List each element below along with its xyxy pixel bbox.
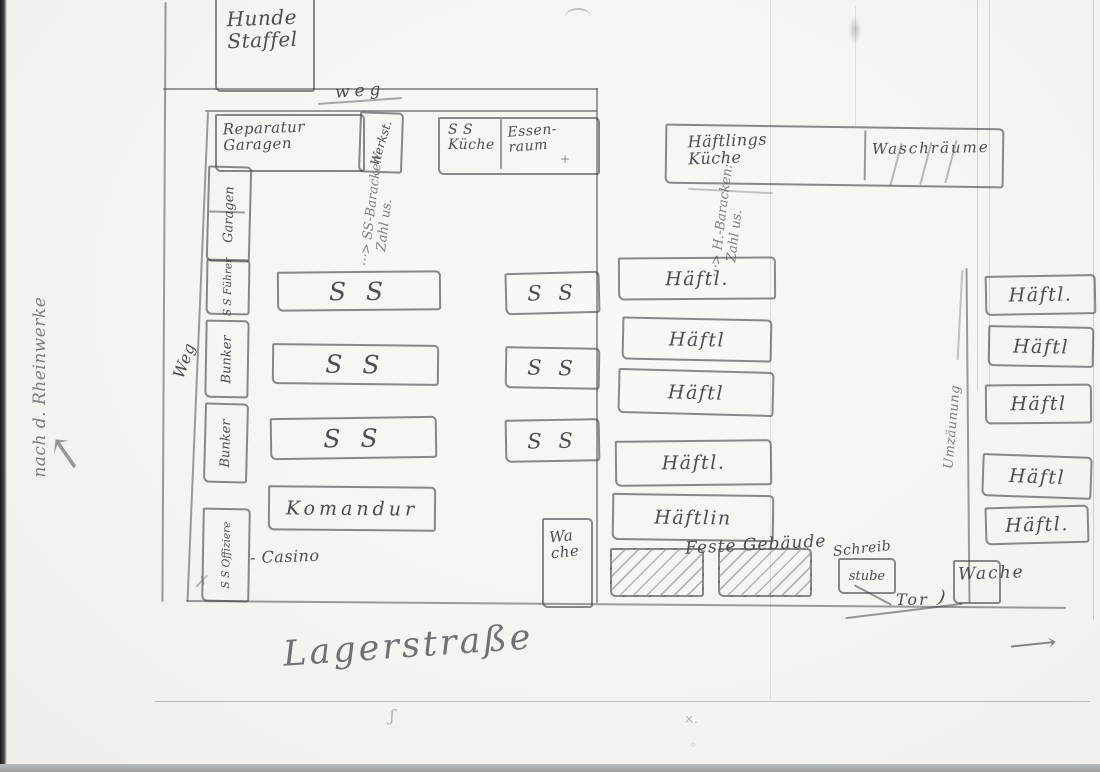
faint-bottom-line [155, 701, 1090, 702]
rheinwerke-arrow: ↖ [45, 425, 86, 481]
haeftl-label: Häftl. [1005, 513, 1069, 537]
ss-small-block-1: S S [504, 271, 600, 315]
casino-label: - Casino [250, 547, 320, 567]
fence-line-right [966, 268, 971, 603]
ss-block-label: S S [325, 350, 386, 380]
essenraum-label: Essen- raum [507, 122, 559, 156]
lagerstrasse-label: Lagerstraße [282, 619, 535, 674]
ss-small-block-3: S S [505, 418, 601, 463]
waschraeume-label: Waschräume [872, 139, 990, 157]
ss-block-label: S S [329, 276, 389, 306]
bunker-label: Bunker [218, 419, 234, 467]
haeftl-block-m3: Häftl [617, 368, 774, 417]
schreibstube-label: stube [849, 569, 885, 584]
haeftl-block-r3: Häftl [985, 384, 1092, 425]
ss-kueche-label: S S Küche [448, 123, 495, 153]
corner-squiggle: ✗ [194, 572, 207, 591]
haeftl-block-r5: Häftl. [985, 505, 1090, 546]
garagen-label: Garagen [221, 186, 237, 243]
haeftl-label: Häftl. [1008, 283, 1072, 306]
scan-edge-left [0, 0, 7, 772]
haeftl-label: Häftl [1009, 465, 1066, 489]
ss-small-block-label: S S [527, 428, 578, 453]
haeftl-block-m4: Häftl. [615, 439, 772, 487]
fence-line-right-double [957, 270, 964, 360]
ss-fuehrer-box: S S Führer [206, 259, 251, 316]
ss-baracken-annotation: ⋯> SS-Baracken: Zahl us. [310, 136, 449, 284]
ss-offiziere-label: S S Offiziere [219, 521, 232, 588]
ss-fuehrer-label: S S Führer [221, 258, 234, 316]
stray-mark: ◦ [690, 738, 697, 752]
haeftl-block-m1: Häftl. [618, 256, 776, 300]
ss-block-3: S S [270, 416, 438, 460]
haeftl-label: Häftl [1013, 335, 1070, 358]
weg-left-label: Weg [170, 341, 199, 381]
fence-annotation: Umzäunung [941, 367, 965, 488]
schreibstube-label-top: Schreib [832, 539, 892, 560]
kueche-wasch-divider [864, 130, 867, 180]
bunker-label: Bunker [219, 335, 235, 383]
hunde-staffel-label: Hunde Staffel [226, 7, 298, 53]
stray-mark: ×. [684, 712, 698, 726]
ss-block-1: S S [277, 270, 441, 311]
tor-label: Tor [896, 591, 929, 608]
haeftl-label: Häftl [669, 328, 726, 351]
pencil-arc-mark [565, 8, 591, 26]
kueche-essenraum-divider [500, 119, 502, 169]
scanned-site-plan: ʃ ×. ◦ Hunde Staffel weg Weg Lagerstraße… [0, 0, 1100, 772]
ss-compound-top-line [205, 110, 597, 112]
haeftl-block-r2: Häftl [988, 325, 1095, 368]
haeftl-label: Häftl [668, 381, 725, 404]
bunker-box-2: Bunker [203, 402, 249, 483]
komandur-label: Komandur [286, 497, 418, 520]
garagen-box: Garagen [206, 165, 252, 262]
fold-line [977, 0, 978, 390]
schreibstube-box: stube [838, 558, 896, 594]
haeftl-block-r4: Häftl [981, 453, 1092, 500]
reparatur-garagen-label: Reparatur Garagen [222, 119, 305, 154]
haeftl-block-r1: Häftl. [985, 274, 1097, 316]
haeftl-block-m2: Häftl [622, 316, 773, 362]
bunker-box-1: Bunker [204, 320, 249, 399]
ss-small-block-2: S S [505, 346, 601, 390]
ss-small-block-label: S S [527, 280, 578, 305]
scan-edge-bottom [0, 764, 1100, 772]
direction-arrow-right: ⟶ [1008, 630, 1059, 661]
stray-mark: ʃ [390, 706, 394, 725]
haeftl-label: Häftl [1010, 393, 1066, 415]
ss-small-block-label: S S [527, 356, 578, 381]
ss-block-2: S S [272, 343, 439, 386]
ss-block-label: S S [323, 423, 384, 453]
haeftl-label: Häftl. [662, 452, 726, 475]
haeftl-label: Häftlin [654, 506, 732, 529]
haeftl-label: Häftl. [665, 267, 729, 289]
wache-left-label: Wa che [548, 527, 580, 562]
essenraum-plus-mark: + [560, 153, 571, 166]
outer-left-boundary [161, 2, 166, 602]
wache-right-label: Wache [958, 562, 1049, 583]
ss-offiziere-box: S S Offiziere [201, 508, 251, 603]
komandur-box: Komandur [268, 485, 436, 531]
smudge [848, 16, 862, 44]
